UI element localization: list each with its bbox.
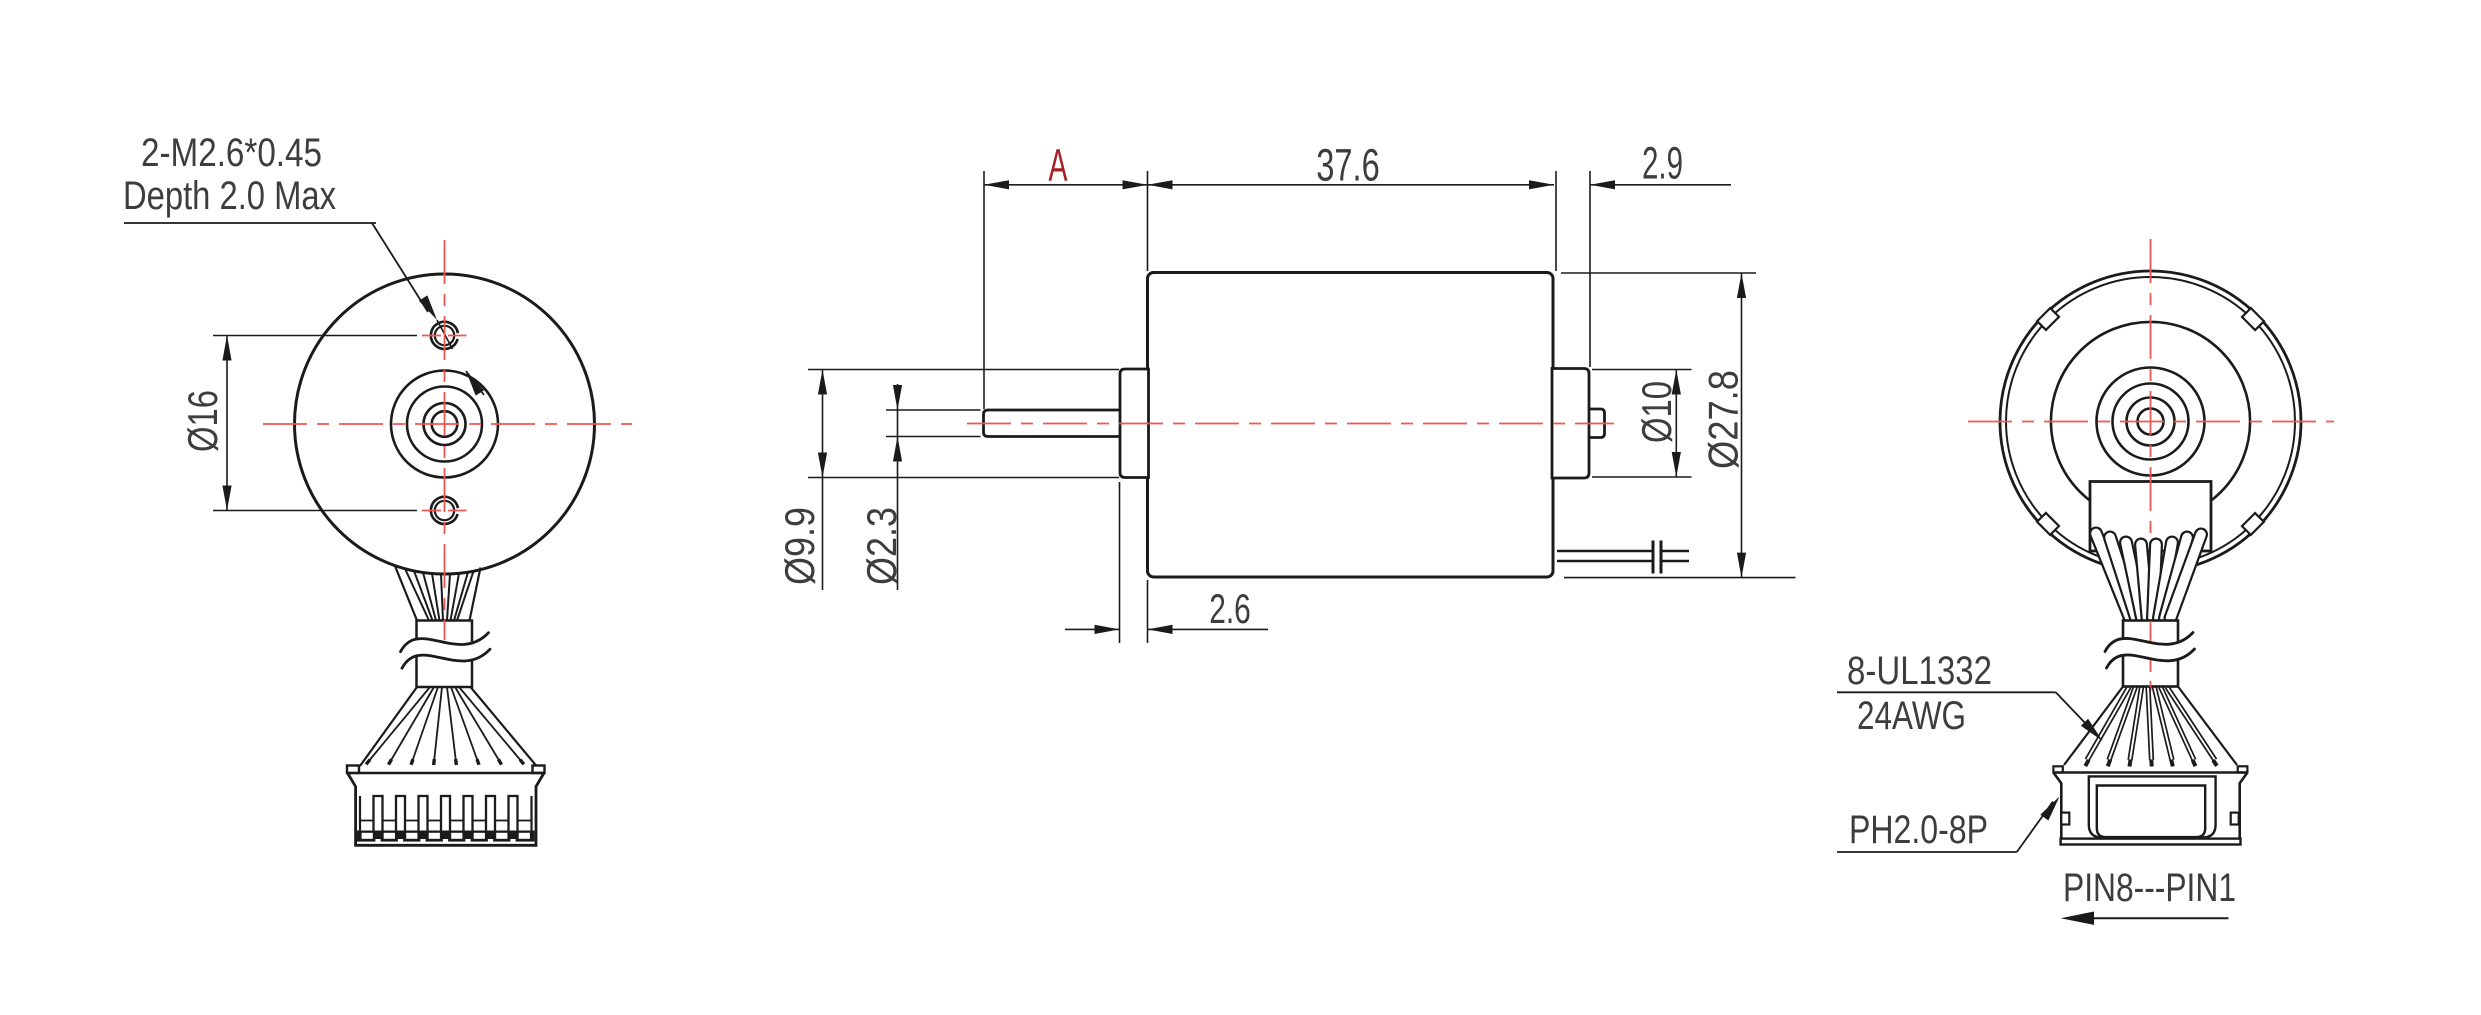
- svg-text:Depth 2.0 Max: Depth 2.0 Max: [123, 174, 336, 218]
- svg-text:2.6: 2.6: [1209, 585, 1251, 632]
- svg-text:24AWG: 24AWG: [1857, 694, 1966, 738]
- svg-text:Ø2.3: Ø2.3: [858, 507, 905, 585]
- svg-text:8-UL1332: 8-UL1332: [1847, 649, 1992, 693]
- svg-text:Ø9.9: Ø9.9: [776, 507, 823, 585]
- svg-text:PH2.0-8P: PH2.0-8P: [1849, 808, 1988, 852]
- svg-text:A: A: [1049, 140, 1068, 191]
- svg-text:Ø10: Ø10: [1633, 381, 1680, 443]
- svg-text:37.6: 37.6: [1316, 140, 1380, 191]
- svg-text:2-M2.6*0.45: 2-M2.6*0.45: [141, 131, 322, 175]
- svg-text:Ø27.8: Ø27.8: [1700, 370, 1747, 469]
- svg-text:2.9: 2.9: [1642, 138, 1683, 189]
- svg-text:PIN8---PIN1: PIN8---PIN1: [2063, 866, 2236, 910]
- svg-text:Ø16: Ø16: [179, 390, 226, 452]
